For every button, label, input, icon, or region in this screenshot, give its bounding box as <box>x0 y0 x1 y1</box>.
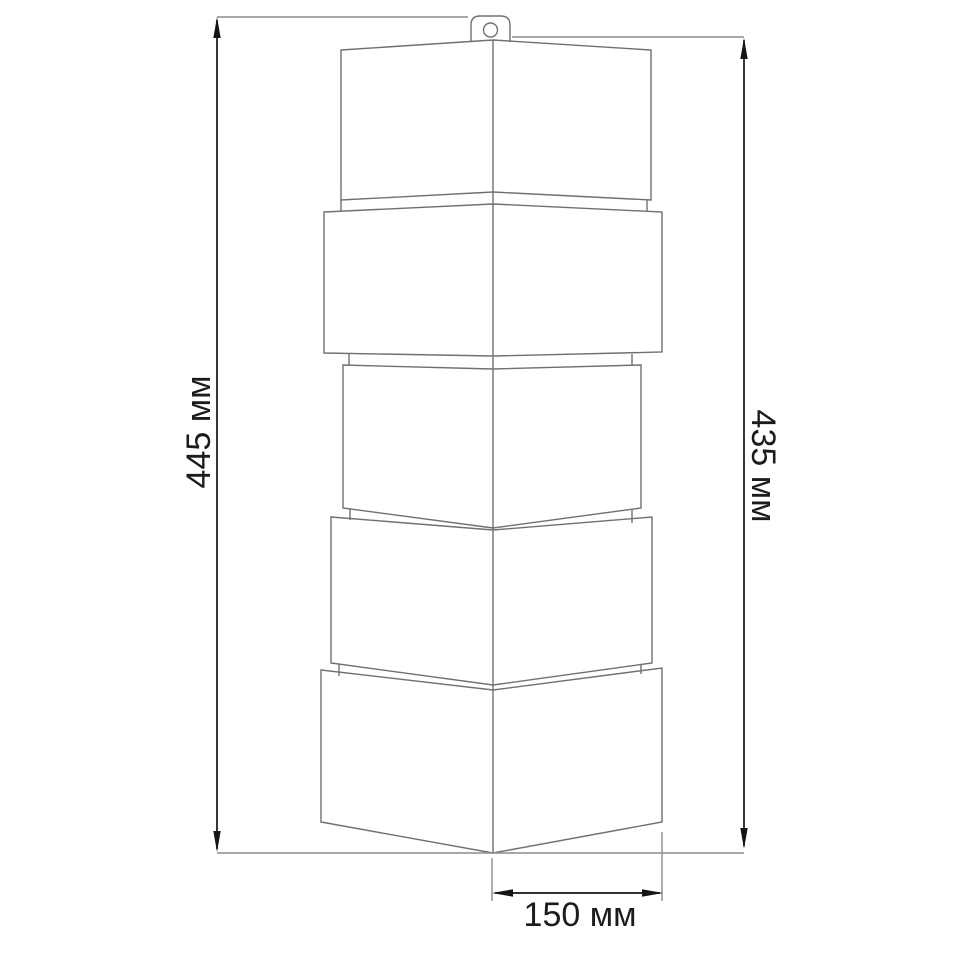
arrow-left-icon <box>492 889 513 896</box>
extension-lines <box>217 17 744 901</box>
arrow-up-icon <box>740 38 747 59</box>
stone-block-5 <box>321 668 662 853</box>
technical-drawing: 445 мм 435 мм 150 мм <box>0 0 960 960</box>
stone-block-1 <box>341 40 651 200</box>
dimension-label-height-total: 445 мм <box>180 376 218 489</box>
nail-tab <box>471 16 510 42</box>
arrow-down-icon <box>213 831 220 852</box>
corner-panel <box>321 16 662 853</box>
dimension-lines <box>213 17 747 897</box>
arrow-up-icon <box>213 17 220 38</box>
nail-hole-icon <box>484 23 498 37</box>
drawing-canvas: 445 мм 435 мм 150 мм <box>0 0 960 960</box>
dimension-label-width-face: 150 мм <box>524 896 637 934</box>
arrow-down-icon <box>740 828 747 849</box>
stone-block-3 <box>343 365 641 528</box>
dimension-label-height-panel: 435 мм <box>744 410 782 523</box>
arrow-right-icon <box>642 889 663 896</box>
stone-block-4 <box>331 517 652 685</box>
